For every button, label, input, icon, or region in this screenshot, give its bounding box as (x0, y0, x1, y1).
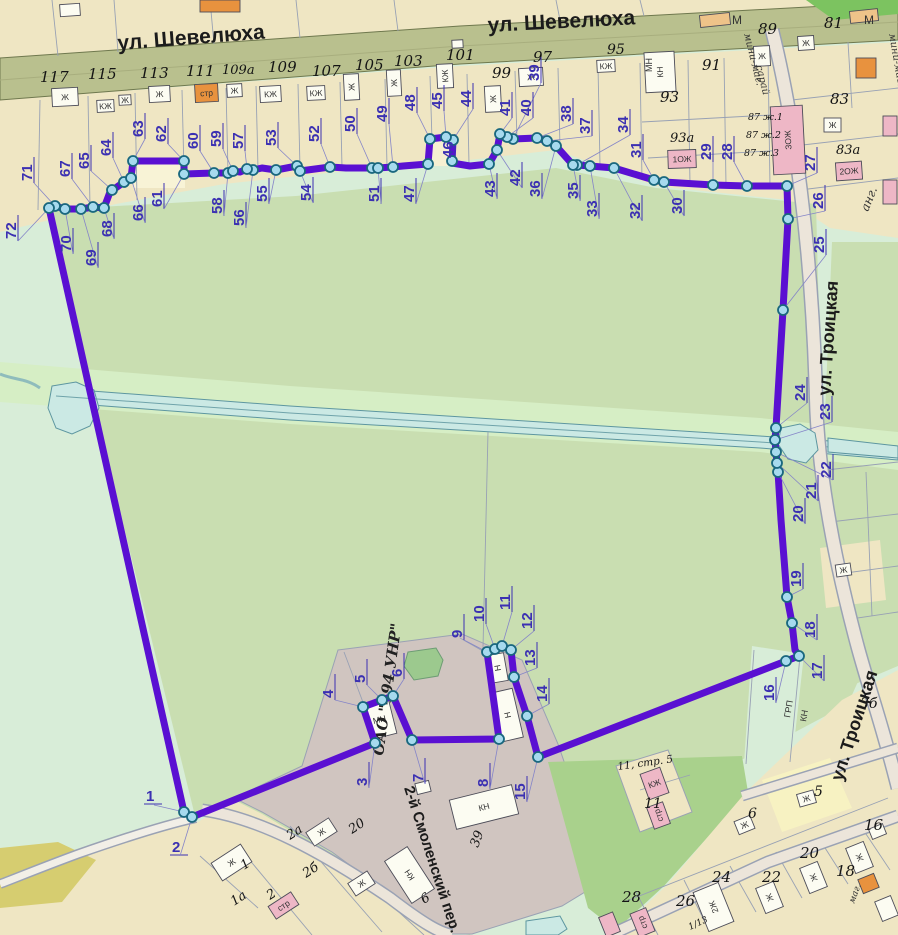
vertex-number-label: 48 (402, 94, 419, 111)
vertex-number-label: 58 (209, 197, 226, 214)
building-type-label: Ж (389, 79, 399, 88)
vertex-marker[interactable] (76, 204, 86, 214)
vertex-number-label: 42 (507, 169, 524, 186)
building-type-label: Ж (839, 564, 848, 575)
vertex-marker[interactable] (585, 161, 595, 171)
vertex-number-label: 26 (810, 192, 827, 209)
vertex-number-label: 22 (818, 461, 835, 478)
building-type-label: МН (644, 58, 654, 72)
house-number-label: 18 (836, 862, 855, 880)
vertex-number-label: 62 (153, 125, 170, 142)
vertex-number-label: 17 (809, 662, 826, 679)
vertex-marker[interactable] (781, 656, 791, 666)
vertex-number-label: 4 (320, 689, 337, 698)
vertex-marker[interactable] (242, 164, 252, 174)
building-type-label: КЖ (599, 61, 612, 72)
vertex-number-label: 19 (788, 570, 805, 587)
vertex-marker[interactable] (782, 181, 792, 191)
cadastral-map[interactable]: ЖКЖЖЖстрЖКЖКЖЖЖКЖЖЖКЖКНЖЖЖ2ОЖЗОЖ1ОЖЖМННН… (0, 0, 898, 935)
vertex-number-label: 41 (497, 99, 514, 116)
house-number-label: 95 (607, 42, 625, 58)
vertex-number-label: 2 (172, 839, 180, 856)
vertex-marker[interactable] (506, 645, 516, 655)
vertex-number-label: 27 (802, 154, 819, 171)
vertex-marker[interactable] (179, 156, 189, 166)
vertex-number-label: 1 (146, 788, 154, 805)
house-number-label: 6 (748, 806, 757, 822)
vertex-marker[interactable] (373, 163, 383, 173)
house-number-label: 5 (814, 784, 823, 800)
vertex-marker[interactable] (568, 160, 578, 170)
vertex-number-label: 9 (449, 630, 466, 638)
vertex-number-label: 56 (231, 209, 248, 226)
house-number-label: 111 (186, 62, 215, 80)
vertex-marker[interactable] (649, 175, 659, 185)
house-number-label: 115 (88, 65, 117, 83)
vertex-marker[interactable] (783, 214, 793, 224)
vertex-marker[interactable] (107, 185, 117, 195)
vertex-number-label: 68 (99, 220, 116, 237)
vertex-number-label: 6 (389, 669, 406, 677)
house-number-label: 11 (644, 796, 662, 812)
vertex-marker[interactable] (495, 129, 505, 139)
vertex-number-label: 60 (185, 132, 202, 149)
building (60, 3, 81, 16)
vertex-marker[interactable] (492, 145, 502, 155)
vertex-number-label: 25 (811, 236, 828, 253)
building-type-label: Ж (829, 120, 837, 130)
vertex-marker[interactable] (708, 180, 718, 190)
vertex-number-label: 15 (512, 783, 529, 800)
vertex-number-label: 54 (298, 184, 315, 201)
vertex-number-label: 46 (440, 141, 457, 158)
house-number-label: 89 (758, 20, 778, 38)
vertex-marker[interactable] (388, 162, 398, 172)
vertex-number-label: 49 (374, 105, 391, 122)
building (699, 12, 730, 27)
vertex-marker[interactable] (370, 738, 380, 748)
house-number-label: 91 (702, 56, 721, 74)
building (856, 58, 876, 78)
vertex-number-label: 39 (526, 64, 543, 81)
vertex-marker[interactable] (770, 435, 780, 445)
building-type-label: М (732, 13, 742, 27)
vertex-marker[interactable] (771, 423, 781, 433)
vertex-marker[interactable] (179, 169, 189, 179)
vertex-number-label: 16 (761, 684, 778, 701)
house-number-label: 103 (394, 52, 423, 70)
vertex-number-label: 23 (817, 403, 834, 420)
building-type-label: Ж (155, 89, 164, 99)
house-number-label: 101 (446, 46, 475, 64)
vertex-number-label: 30 (669, 197, 686, 214)
house-number-label: 81 (824, 14, 843, 32)
vertex-marker[interactable] (494, 734, 504, 744)
vertex-number-label: 55 (254, 185, 271, 202)
vertex-number-label: 32 (627, 202, 644, 219)
map-viewport[interactable]: ЖКЖЖЖстрЖКЖКЖЖЖКЖЖЖКЖКНЖЖЖ2ОЖЗОЖ1ОЖЖМННН… (0, 0, 898, 935)
vertex-number-label: 40 (518, 99, 535, 116)
vertex-marker[interactable] (425, 134, 435, 144)
vertex-marker[interactable] (44, 203, 54, 213)
vertex-marker[interactable] (126, 173, 136, 183)
vertex-number-label: 61 (149, 190, 166, 207)
vertex-marker[interactable] (794, 651, 804, 661)
vertex-number-label: 64 (98, 139, 115, 156)
vertex-number-label: 44 (458, 90, 475, 107)
vertex-number-label: 14 (534, 685, 551, 702)
vertex-number-label: 34 (615, 116, 632, 133)
building-type-label: КЖ (440, 69, 451, 82)
vertex-number-label: 72 (3, 222, 20, 239)
vertex-number-label: 11 (497, 594, 514, 610)
vertex-number-label: 69 (83, 249, 100, 266)
building-type-label: Ж (121, 95, 130, 105)
vertex-marker[interactable] (271, 165, 281, 175)
building-type-label: КЖ (264, 89, 277, 100)
house-number-label: 87 ж.3 (744, 148, 779, 159)
vertex-marker[interactable] (542, 136, 552, 146)
house-number-label: 113 (140, 64, 169, 82)
vertex-marker[interactable] (484, 159, 494, 169)
vertex-number-label: 18 (802, 621, 819, 638)
house-number-label: 99 (492, 64, 512, 82)
vertex-number-label: 59 (208, 130, 225, 147)
vertex-marker[interactable] (771, 447, 781, 457)
vertex-marker[interactable] (377, 695, 387, 705)
building-type-label: 1ОЖ (672, 154, 691, 165)
vertex-marker[interactable] (533, 752, 543, 762)
house-number-label: 24 (711, 868, 731, 886)
building-type-label: Ж (346, 83, 356, 92)
vertex-number-label: 63 (130, 120, 147, 137)
vertex-marker[interactable] (659, 177, 669, 187)
vertex-marker[interactable] (358, 702, 368, 712)
vertex-number-label: 66 (130, 204, 147, 221)
vertex-marker[interactable] (782, 592, 792, 602)
vertex-marker[interactable] (522, 711, 532, 721)
vertex-number-label: 28 (719, 143, 736, 160)
vertex-marker[interactable] (423, 159, 433, 169)
vertex-number-label: 50 (342, 115, 359, 132)
vertex-number-label: 5 (352, 675, 369, 683)
house-number-label: 97 (533, 48, 553, 66)
house-number-label: 109а (222, 63, 255, 78)
house-number-label: 16 (864, 816, 884, 834)
vertex-number-label: 12 (519, 612, 536, 629)
house-number-label: 22 (761, 868, 781, 886)
vertex-number-label: 20 (790, 505, 807, 522)
vertex-number-label: 67 (57, 160, 74, 177)
house-number-label: 107 (312, 62, 341, 80)
house-number-label: 83а (836, 143, 860, 158)
vertex-number-label: 38 (558, 105, 575, 122)
vertex-number-label: 35 (565, 182, 582, 199)
house-number-label: 20 (799, 844, 820, 862)
vertex-number-label: 57 (230, 132, 247, 149)
vertex-number-label: 29 (698, 143, 715, 160)
vertex-marker[interactable] (388, 691, 398, 701)
house-number-label: 109 (268, 58, 297, 76)
vertex-number-label: 3 (354, 778, 371, 786)
vertex-marker[interactable] (509, 672, 519, 682)
vertex-number-label: 13 (522, 649, 539, 666)
vertex-number-label: 52 (306, 125, 323, 142)
house-number-label: 93 (660, 88, 679, 106)
building-type-label: КЖ (99, 101, 112, 112)
vertex-number-label: 7 (410, 774, 427, 782)
vertex-marker[interactable] (60, 204, 70, 214)
house-number-label: 87 ж.2 (746, 130, 781, 141)
house-number-label: 28 (621, 888, 641, 906)
vertex-marker[interactable] (325, 162, 335, 172)
vertex-marker[interactable] (128, 156, 138, 166)
vertex-number-label: 51 (366, 185, 383, 202)
building-type-label: Ж (802, 38, 811, 49)
vertex-marker[interactable] (532, 133, 542, 143)
building (200, 0, 240, 12)
vertex-number-label: 36 (527, 180, 544, 197)
building-type-label: М (864, 13, 874, 27)
building-type-label: Ж (61, 92, 70, 102)
building-type-label: ЗОЖ (782, 130, 793, 150)
house-number-label: 105 (355, 56, 384, 74)
vertex-marker[interactable] (228, 166, 238, 176)
building-type-label: КН (655, 66, 666, 78)
vertex-marker[interactable] (742, 181, 752, 191)
vertex-marker[interactable] (187, 812, 197, 822)
house-number-label: 83 (830, 90, 849, 108)
vertex-marker[interactable] (99, 203, 109, 213)
vertex-number-label: 37 (577, 117, 594, 134)
house-number-label: 93а (670, 131, 694, 146)
vertex-number-label: 71 (19, 164, 36, 181)
vertex-marker[interactable] (772, 458, 782, 468)
vertex-marker[interactable] (787, 618, 797, 628)
house-number-label: 117 (40, 68, 69, 86)
house-number-label: 87 ж.1 (748, 112, 783, 123)
vertex-number-label: 8 (475, 779, 492, 787)
vertex-marker[interactable] (209, 168, 219, 178)
vertex-number-label: 65 (76, 152, 93, 169)
vertex-number-label: 70 (58, 235, 75, 252)
vertex-marker[interactable] (778, 305, 788, 315)
vertex-marker[interactable] (295, 166, 305, 176)
vertex-marker[interactable] (609, 163, 619, 173)
house-number-label: 26 (675, 892, 696, 910)
vertex-number-label: 21 (803, 482, 820, 499)
vertex-number-label: 33 (584, 200, 601, 217)
vertex-number-label: 45 (429, 92, 446, 109)
vertex-marker[interactable] (441, 132, 451, 142)
building-type-label: КН (798, 709, 810, 722)
building-type-label: стр (200, 88, 214, 99)
vertex-number-label: 24 (792, 384, 809, 401)
building (883, 116, 897, 136)
vertex-number-label: 10 (471, 605, 488, 622)
vertex-number-label: 43 (482, 180, 499, 197)
building (883, 180, 897, 204)
building-type-label: КЖ (309, 88, 322, 99)
vertex-marker[interactable] (88, 202, 98, 212)
vertex-number-label: 47 (401, 185, 418, 202)
vertex-number-label: 31 (628, 141, 645, 158)
building-type-label: 2ОЖ (839, 165, 859, 176)
building-type-label: Ж (230, 85, 239, 95)
vertex-number-label: 53 (263, 129, 280, 146)
vertex-marker[interactable] (407, 735, 417, 745)
